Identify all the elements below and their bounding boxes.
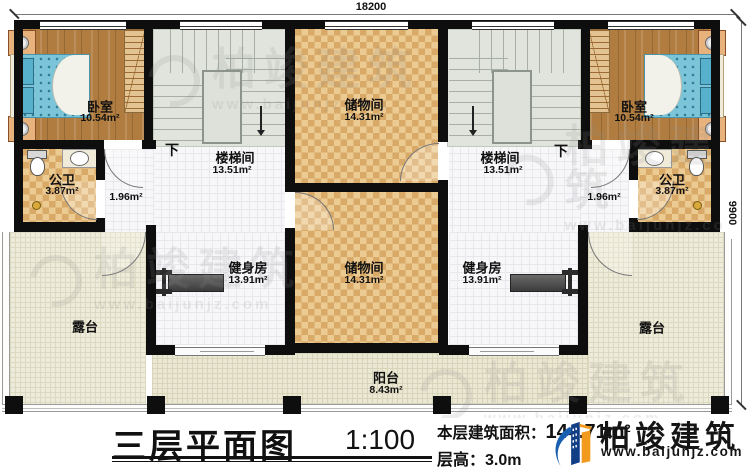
dimension-width: 18200 [340,1,402,13]
window [608,21,694,30]
floor-height-value: 3.0m [485,452,521,469]
brand-logo: 柏竣建筑 www.baijunjz.com [550,408,750,473]
stair-landing [492,70,532,144]
sink-basin [70,151,89,166]
window [40,21,126,30]
storage-right-wall [438,20,448,142]
terrace-gym-wall [146,225,156,355]
railing-pillar [283,396,301,414]
room-area-corridor-left: 1.96m² [109,191,142,203]
wardrobe [588,29,610,113]
terrace-railing-left [2,232,10,408]
room-area-bedroom-right: 10.54m² [614,112,653,124]
bedroom-bottom-wall [142,140,156,149]
bathroom-bottom-wall [14,222,100,232]
barbell-plate [156,289,172,294]
room-area-bedroom-left: 10.54m² [80,112,119,124]
balcony-railing [2,404,367,412]
bedroom-bottom-wall [630,140,720,149]
barbell-plate [156,270,172,275]
brand-site: www.baijunjz.com [601,444,743,459]
stair-down-label-left: 下 [165,140,179,160]
title-underline [112,461,432,462]
storage-divider-wall [285,183,448,192]
gym-bottom-wall [559,345,584,355]
dimension-line-top [14,14,736,15]
gym-bench [168,274,224,292]
stair-left-flight [532,85,581,145]
stair-down-arrow [260,106,262,134]
storage-left-wall [285,228,295,353]
room-area-stairwell-right: 13.51m² [483,164,522,176]
room-label-terrace-right: 露台 [639,318,665,337]
window [472,21,554,30]
balcony-sliding-door [175,347,265,356]
dimension-height: 9900 [726,187,738,239]
stair-left-flight [153,85,202,145]
floor-area-label: 本层建筑面积： [437,425,546,442]
bedroom-stair-wall [144,20,153,149]
railing-pillar [147,396,165,414]
floor-plan-canvas: 柏竣建筑 www.baijunjz.com 柏竣建筑 www.baijunjz.… [0,0,750,473]
floor-drain [32,201,41,210]
bedroom-bottom-wall [578,140,592,149]
toilet-bowl [30,157,45,176]
floor-drain [693,201,702,210]
stair-landing [202,70,242,144]
room-area-gym-left: 13.91m² [228,274,267,286]
terrace-gym-wall [578,225,588,355]
room-area-storage-top: 14.31m² [344,111,383,123]
stair-down-arrow [472,106,474,134]
storage-left-wall [285,20,295,192]
gym-bottom-wall [150,345,175,355]
bedroom-stair-wall [581,20,590,149]
dimension-line-right [741,22,742,406]
floor-height-label: 层高： [437,452,485,469]
bathroom-left-wall [629,149,638,180]
bathroom-bottom-wall [634,222,720,232]
room-area-stairwell-left: 13.51m² [212,164,251,176]
room-area-gym-right: 13.91m² [462,274,501,286]
wardrobe [124,29,146,113]
floor-height-stat: 层高：3.0m [437,446,521,470]
room-area-bath-right: 3.87m² [655,185,688,197]
gym-bench [510,274,566,292]
stair-down-label-right: 下 [554,141,568,161]
outer-wall-left [14,20,23,232]
room-area-storage-bottom: 14.31m² [344,274,383,286]
brand-logo-icon [550,416,598,472]
window [180,21,262,30]
title-bar: 三层平面图 1:100 本层建筑面积：144.71m2 层高：3.0m 柏竣建筑… [0,418,750,473]
railing-pillar [433,396,451,414]
room-label-terrace-left: 露台 [72,317,98,336]
storage-right-wall [438,180,448,353]
window [325,21,408,30]
terrace-railing-right [724,232,732,408]
balcony-sliding-door [469,347,559,356]
barbell-plate [562,289,578,294]
plan-scale: 1:100 [345,424,415,456]
bed-blanket [52,55,89,115]
outer-wall-right [711,20,720,232]
room-area-bath-left: 3.87m² [45,185,78,197]
room-area-corridor-right: 1.96m² [587,191,620,203]
sink-basin [645,151,664,166]
toilet-bowl [689,157,704,176]
room-area-balcony: 8.43m² [369,384,402,396]
railing-pillar [5,396,23,414]
storage-bottom-wall [285,343,448,353]
title-underline [112,456,432,459]
barbell-plate [562,270,578,275]
bedroom-bottom-wall [14,140,104,149]
